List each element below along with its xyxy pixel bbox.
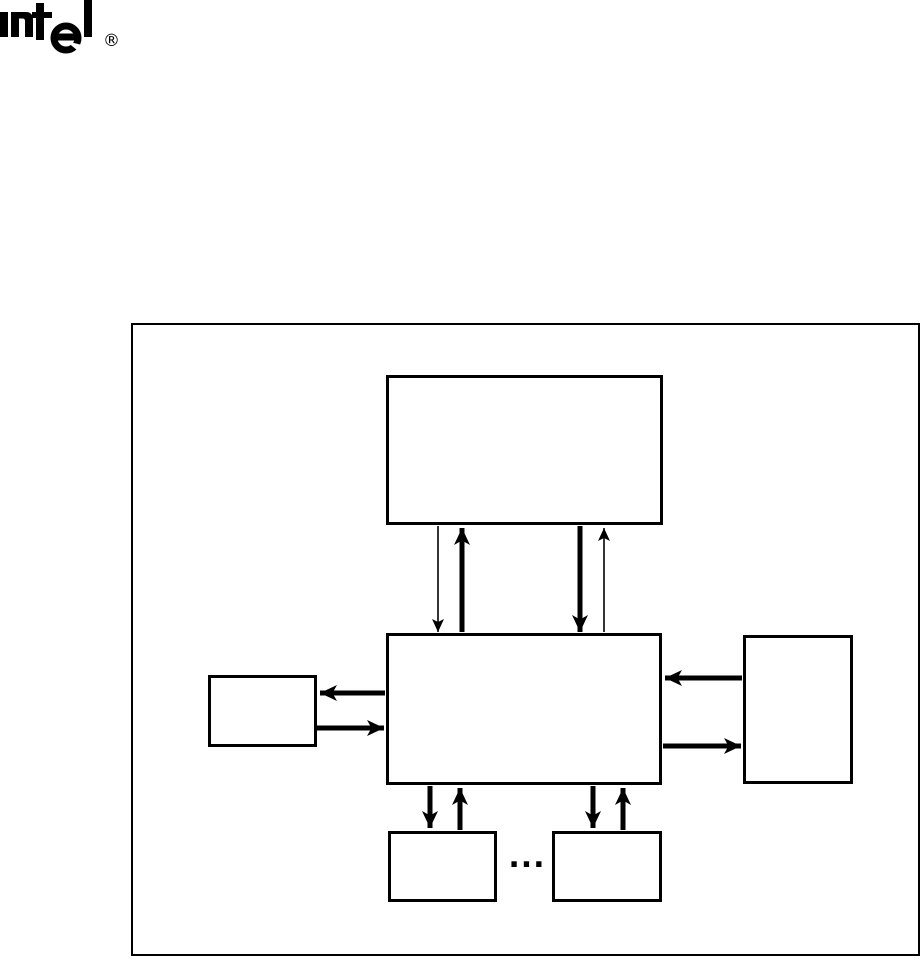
diagram-right-box [743,635,853,784]
logo-letter-i [0,12,8,37]
diagram-center-box [386,633,662,785]
document-page: ® ... [0,0,923,960]
logo-letter-l [84,0,92,37]
logo-letter-n [11,12,33,37]
diagram-top-box [386,375,663,525]
intel-logo [0,0,100,56]
logo-letter-t [32,3,52,40]
more-boxes-ellipsis: ... [503,843,551,873]
diagram-bottom-box-right [552,831,662,902]
diagram-bottom-box-left [388,831,497,902]
diagram-left-box [208,675,317,747]
registered-trademark-symbol: ® [103,33,120,50]
